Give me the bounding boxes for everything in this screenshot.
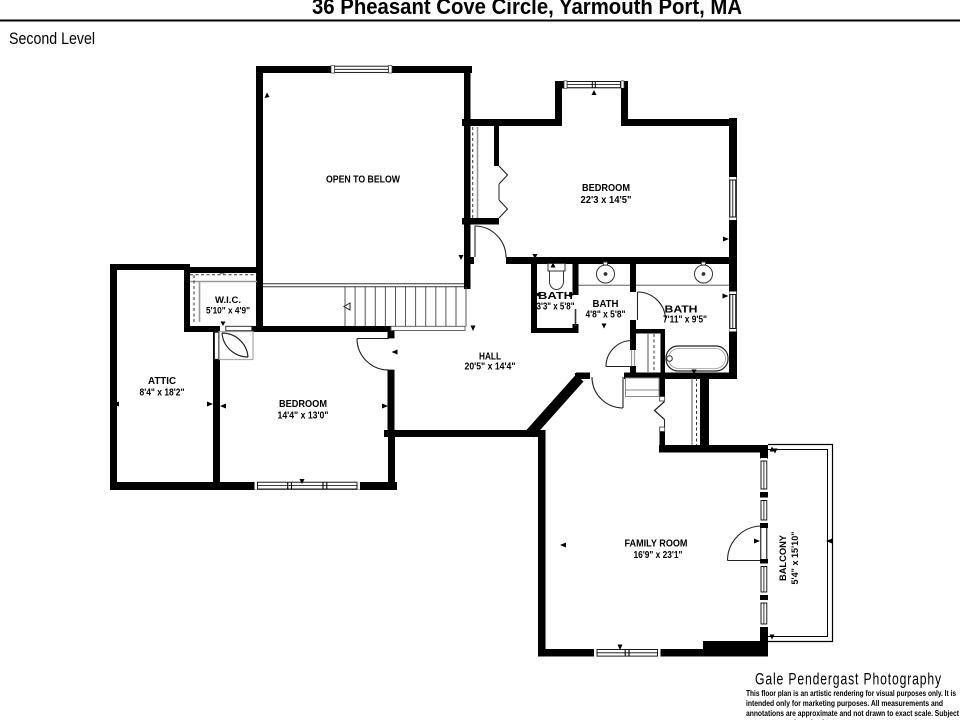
svg-text:BATH: BATH (593, 299, 619, 310)
svg-text:BATH: BATH (538, 291, 573, 302)
svg-text:5'10" x 4'9": 5'10" x 4'9" (206, 306, 250, 317)
svg-text:BALCONY: BALCONY (778, 534, 789, 581)
svg-text:36 Pheasant Cove Circle, Yarmo: 36 Pheasant Cove Circle, Yarmouth Port, … (312, 0, 742, 19)
svg-text:16'9" x 23'1": 16'9" x 23'1" (634, 549, 683, 561)
svg-text:20'5" x 14'4": 20'5" x 14'4" (465, 362, 516, 373)
svg-text:W.I.C.: W.I.C. (215, 295, 241, 306)
svg-text:3'3" x 5'8": 3'3" x 5'8" (537, 302, 575, 313)
svg-text:7'11" x 9'5": 7'11" x 9'5" (663, 315, 707, 326)
svg-text:intended only for marketing pu: intended only for marketing purposes. Al… (746, 698, 943, 708)
svg-text:BEDROOM: BEDROOM (582, 183, 630, 194)
svg-text:ATTIC: ATTIC (148, 376, 176, 387)
svg-text:Second Level: Second Level (9, 29, 95, 48)
svg-text:Gale Pendergast Photography: Gale Pendergast Photography (755, 670, 942, 689)
svg-text:4'8" x 5'8": 4'8" x 5'8" (586, 310, 626, 321)
svg-text:This floor plan is an artistic: This floor plan is an artistic rendering… (746, 688, 956, 698)
svg-text:8'4" x 18'2": 8'4" x 18'2" (140, 388, 185, 399)
svg-text:annotations are approximate an: annotations are approximate and not draw… (746, 708, 959, 718)
svg-text:FAMILY ROOM: FAMILY ROOM (625, 538, 688, 550)
svg-text:5'4" x 15'10": 5'4" x 15'10" (790, 532, 800, 585)
svg-text:14'4" x 13'0": 14'4" x 13'0" (278, 411, 329, 422)
svg-text:22'3 x 14'5": 22'3 x 14'5" (581, 195, 632, 206)
svg-text:BEDROOM: BEDROOM (279, 399, 327, 410)
svg-text:OPEN TO BELOW: OPEN TO BELOW (326, 175, 400, 186)
